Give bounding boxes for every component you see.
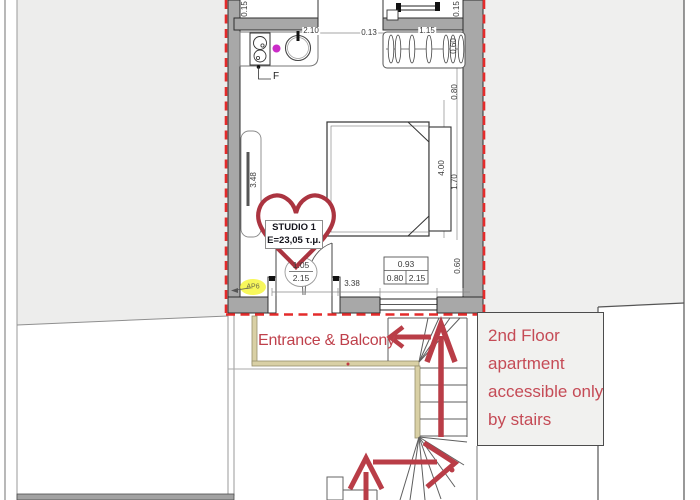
stairs-note-line: apartment [488,350,603,378]
studio-label: STUDIO 1 E=23,05 τ.μ. [265,220,323,249]
annotation-arrows [350,324,455,500]
right-arrow-icon [373,443,455,487]
dim-window-offset: 0.60 [454,258,462,274]
door-width-label: 1.05 [293,261,310,270]
dim-left-height: 3.48 [250,172,258,188]
stairs-note-box: 2nd Floor apartment accessible only by s… [477,312,604,446]
left-arrow-icon [390,327,431,347]
window-total-label: 0.93 [398,260,415,269]
dim-wardrobe-depth: 0.60 [450,38,458,54]
dim-gap: 0.13 [360,29,378,37]
window [380,299,437,310]
dim-kitchen-width: 2.10 [302,27,320,35]
fridge-label: F [273,72,279,82]
studio-area: E=23,05 τ.μ. [266,235,322,248]
upper-room-door [318,0,440,20]
f-leader-line [259,67,272,79]
stairs-note-line: by stairs [488,406,603,434]
dim-top-right-wall: 0.15 [453,1,461,17]
stairs-note-line: accessible only [488,378,603,406]
window-tag-ap6: ΑΡ6 [246,284,259,291]
window-width-label: 0.80 [387,273,404,282]
dim-bed-width: 1.70 [451,174,459,190]
headboard [429,127,451,231]
door-height-label: 2.15 [293,274,310,283]
up-arrow-icon [427,324,455,437]
magenta-dot [273,45,281,53]
floor-plan-canvas: 0.15 0.15 2.10 0.13 1.15 0.60 0.80 4.00 … [0,0,700,500]
dim-wardrobe-width: 1.15 [418,27,436,35]
entrance-balcony-label: Entrance & Balcony [258,332,395,350]
dim-bottom-span: 3.38 [343,280,361,288]
stairs-note-line: 2nd Floor [488,322,603,350]
bed [327,122,451,236]
dim-top-left-wall: 0.15 [241,1,249,17]
dim-room-length: 4.00 [438,160,446,176]
studio-name: STUDIO 1 [266,222,322,235]
window-height-label: 2.15 [409,273,426,282]
dim-right-upper: 0.80 [451,84,459,100]
